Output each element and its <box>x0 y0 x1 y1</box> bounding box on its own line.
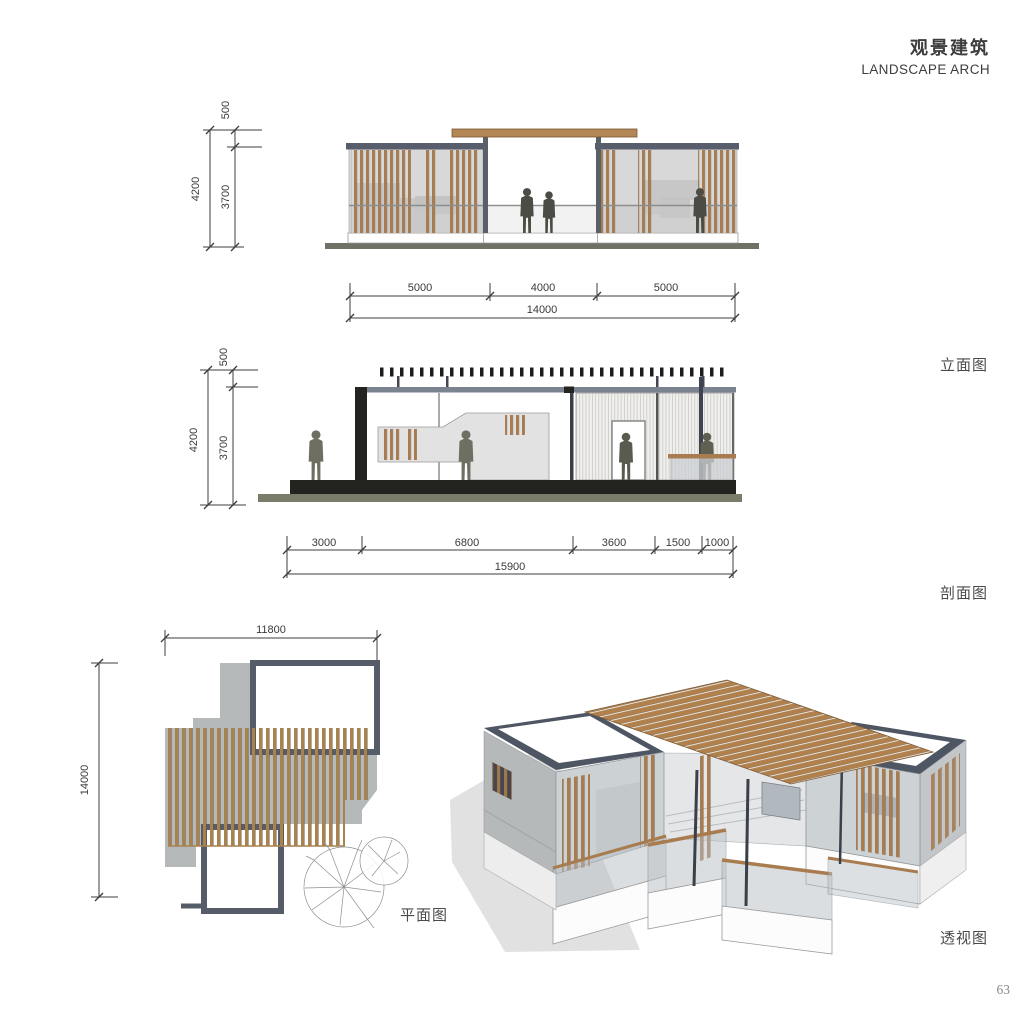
label-section: 剖面图 <box>940 582 988 603</box>
dim-text: 4200 <box>190 177 202 201</box>
dim-text: 1000 <box>705 537 729 549</box>
dim-text: 5000 <box>408 282 432 294</box>
dim-text: 15900 <box>495 561 526 573</box>
title-block: 观景建筑 LANDSCAPE ARCH <box>861 34 990 77</box>
label-elevation: 立面图 <box>940 354 988 375</box>
dim-text: 14000 <box>527 304 558 316</box>
dim-text: 3600 <box>602 537 626 549</box>
dim-text: 500 <box>218 348 230 366</box>
dim-text: 3700 <box>220 185 232 209</box>
label-perspective: 透视图 <box>940 927 988 948</box>
dim-text: 14000 <box>79 765 91 796</box>
dim-text: 3700 <box>218 436 230 460</box>
perspective-drawing <box>450 680 966 954</box>
dim-text: 500 <box>220 101 232 119</box>
page-title-english: LANDSCAPE ARCH <box>861 62 990 77</box>
presentation-sheet: 4200 3700 500 5000 4000 5000 14000 <box>0 0 1024 1024</box>
section-drawing: 4200 3700 500 3000 6800 3600 1500 1000 1 <box>188 348 742 578</box>
page-number: 63 <box>997 982 1011 998</box>
architectural-drawings-canvas: 4200 3700 500 5000 4000 5000 14000 <box>0 0 1024 1024</box>
dim-text: 5000 <box>654 282 678 294</box>
dim-text: 1500 <box>666 537 690 549</box>
page-title-chinese: 观景建筑 <box>861 34 990 60</box>
section-figure <box>309 430 324 480</box>
plan-drawing: 11800 14000 <box>79 624 408 928</box>
dim-text: 4200 <box>188 428 200 452</box>
elevation-vertical-dims <box>203 126 262 251</box>
plan-trees <box>304 837 408 928</box>
dim-text: 3000 <box>312 537 336 549</box>
dim-text: 4000 <box>531 282 555 294</box>
label-plan: 平面图 <box>400 904 448 925</box>
elevation-drawing: 4200 3700 500 5000 4000 5000 14000 <box>190 101 759 322</box>
dim-text: 6800 <box>455 537 479 549</box>
dim-text: 11800 <box>256 624 286 636</box>
